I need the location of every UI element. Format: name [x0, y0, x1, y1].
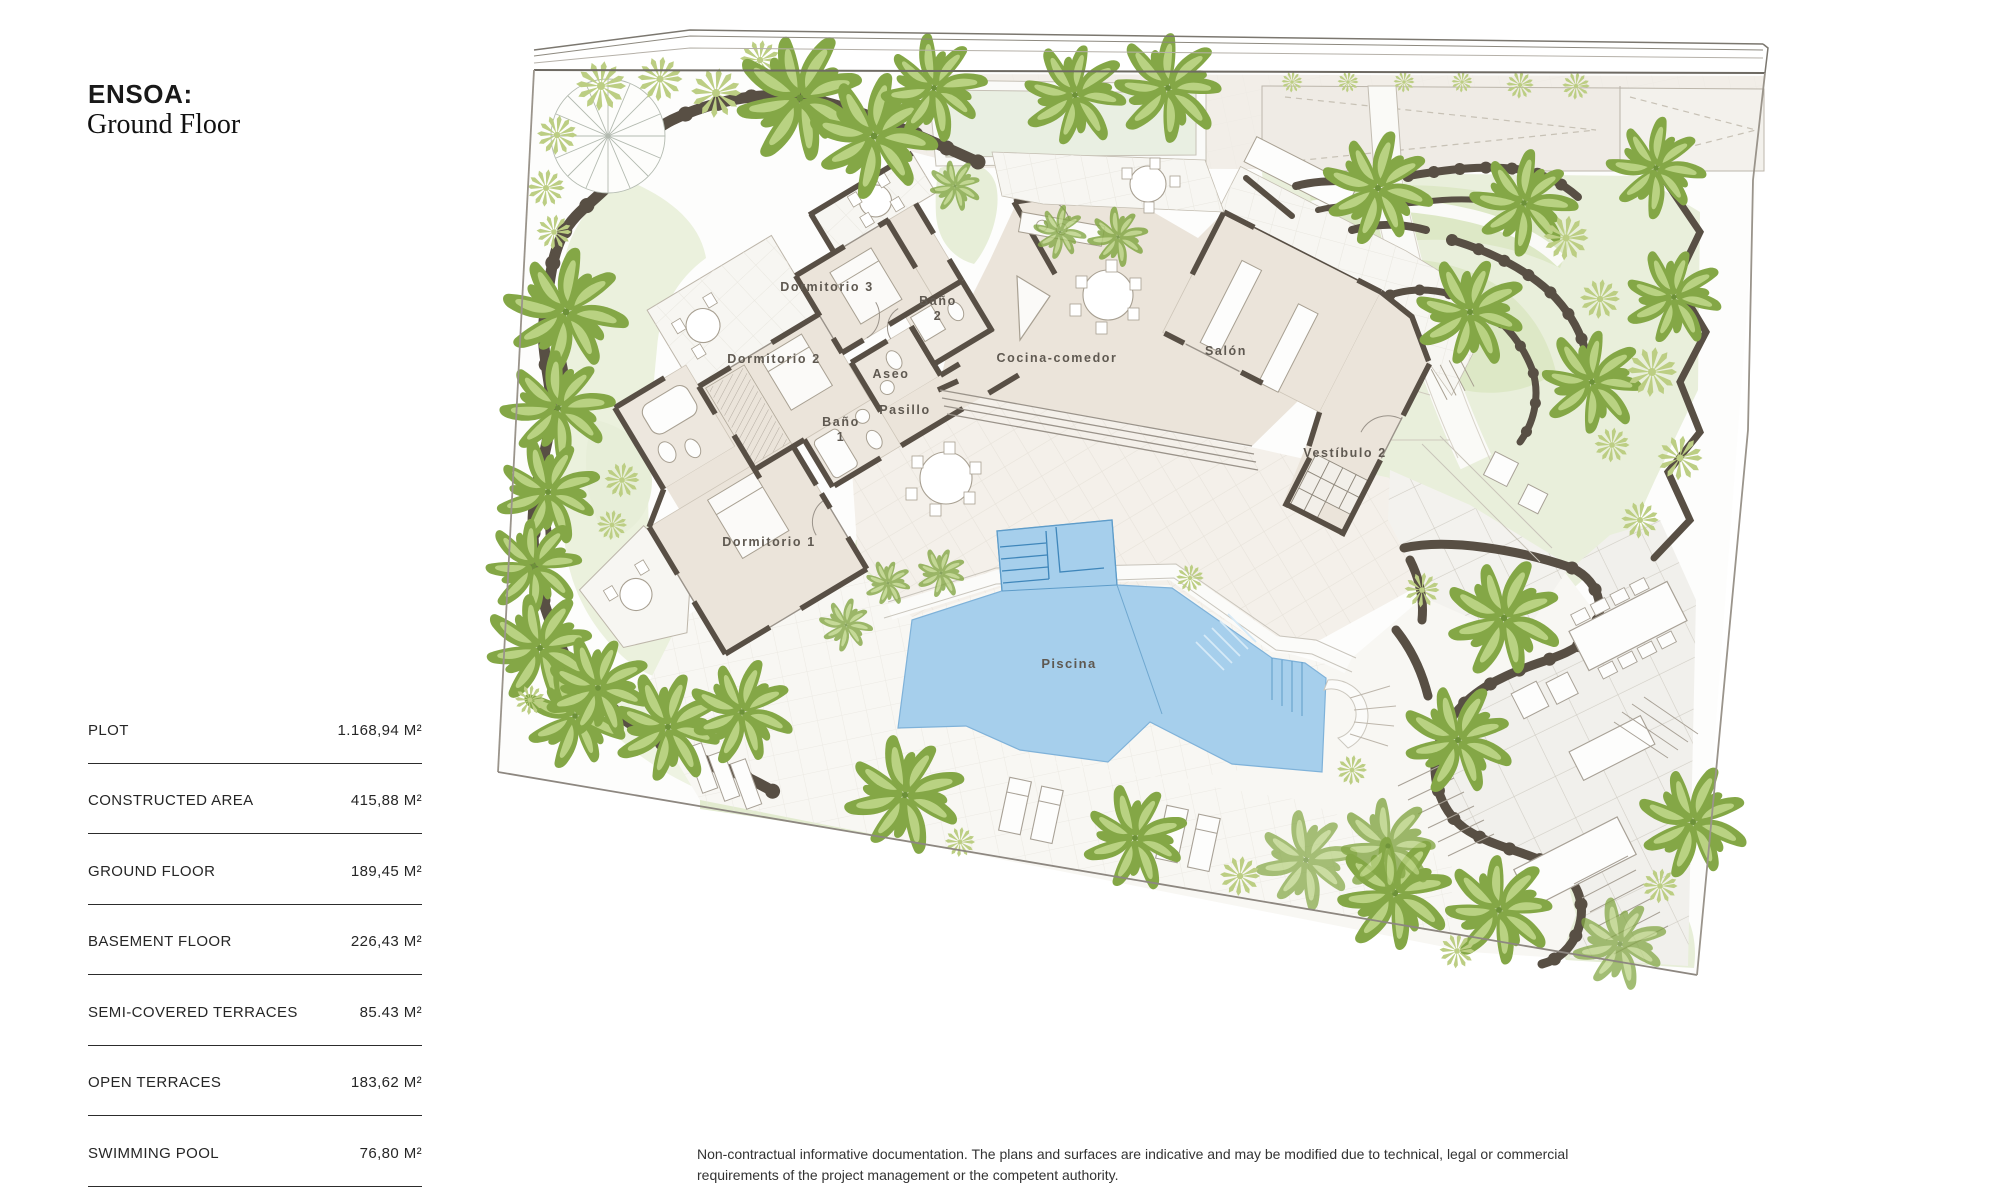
- svg-text:Piscina: Piscina: [1041, 656, 1096, 671]
- svg-text:Dormitorio 3: Dormitorio 3: [780, 280, 874, 294]
- svg-text:Pasillo: Pasillo: [879, 403, 931, 417]
- svg-text:Aseo: Aseo: [873, 367, 910, 381]
- svg-text:Vestíbulo 2: Vestíbulo 2: [1303, 446, 1387, 460]
- svg-text:Dormitorio 1: Dormitorio 1: [722, 535, 816, 549]
- svg-text:Dormitorio 2: Dormitorio 2: [727, 352, 821, 366]
- svg-text:1: 1: [837, 430, 846, 444]
- svg-text:Baño: Baño: [919, 294, 957, 308]
- svg-text:Baño: Baño: [822, 415, 860, 429]
- svg-text:Cocina-comedor: Cocina-comedor: [996, 351, 1117, 365]
- svg-text:Salón: Salón: [1205, 344, 1247, 358]
- svg-text:2: 2: [934, 309, 943, 323]
